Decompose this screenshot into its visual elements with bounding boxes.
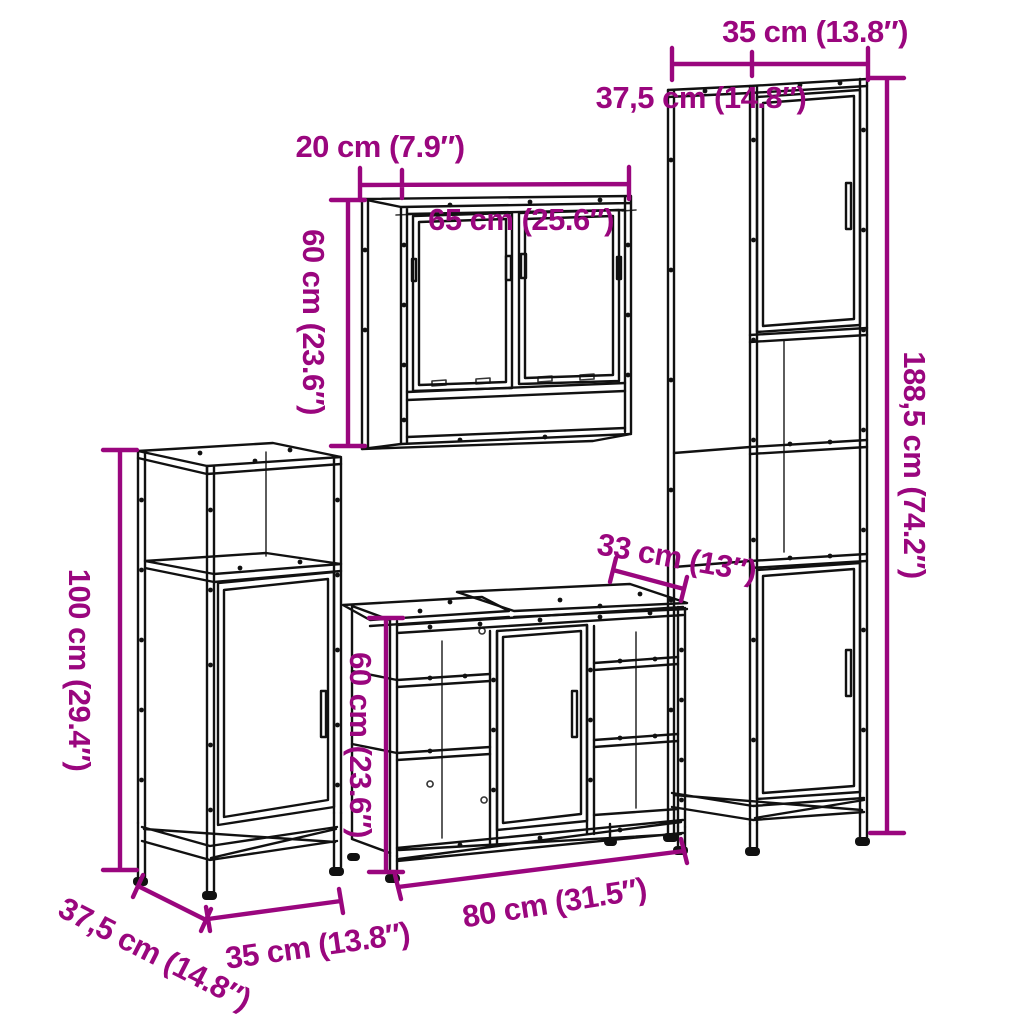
tall-cabinet-feet [663,833,870,856]
mirror-cabinet-height-dimension-line [331,200,365,446]
mirror-cabinet-height-label: 60 cm (23.6″) [296,229,331,415]
side-cabinet-door [218,572,334,825]
mirror-cabinet-bottom [362,428,631,449]
side-cabinet-drawing [133,443,344,900]
tall-cabinet-lower-door [757,563,860,799]
tall-cabinet-width-label: 35 cm (13.8″) [722,14,908,49]
sink-cabinet-depth-label: 33 cm (13″) [595,526,760,588]
side-cabinet-shelf [145,553,341,582]
screw-dots [139,448,340,813]
tall-cabinet-lower-door-handle [846,650,851,696]
tall-cabinet-drawing [663,79,870,856]
dimension-labels: 35 cm (13.8″) 37,5 cm (14.8″) 188,5 cm (… [53,14,932,1017]
mirror-cabinet-depth-label: 20 cm (7.9″) [295,129,464,164]
tall-cabinet-upper-door-handle [846,183,851,229]
mirror-door-left [413,213,512,391]
side-cabinet-width-label: 35 cm (13.8″) [223,915,412,976]
side-cabinet-frame [138,451,341,835]
tall-cabinet-shelf [674,440,867,454]
side-cabinet-feet [133,867,344,900]
side-cabinet-base-frame [142,827,337,860]
cam-holes [427,628,487,803]
tall-cabinet-depth-label: 37,5 cm (14.8″) [596,80,807,115]
mirror-cabinet-depth-dimension-line [360,167,629,200]
tall-cabinet-width-dimension-line [672,48,868,80]
sink-cabinet-drawing [343,584,688,883]
sink-cabinet-door [497,625,587,830]
side-cabinet-door-handle [321,691,326,737]
side-cabinet-height-dimension-line [103,450,137,870]
mirror-cabinet-width-label: 65 cm (25.6″) [428,202,614,237]
mirror-door-hinge [412,257,621,281]
tall-cabinet-upper-door [757,90,860,332]
sink-cabinet-width-label: 80 cm (31.5″) [460,871,649,935]
diagram-svg: 35 cm (13.8″) 37,5 cm (14.8″) 188,5 cm (… [0,0,1024,1024]
sink-cabinet-door-handle [572,691,577,737]
tall-cabinet-height-label: 188,5 cm (74.2″) [897,351,932,578]
screw-dots [669,81,866,743]
mirror-door-handle [506,254,526,280]
sink-cabinet-height-label: 60 cm (23.6″) [343,652,378,838]
furniture-dimension-diagram: 35 cm (13.8″) 37,5 cm (14.8″) 188,5 cm (… [0,0,1024,1024]
side-cabinet-width-dimension-line [206,889,343,931]
side-cabinet-top [138,443,341,474]
side-cabinet-height-label: 100 cm (29.4″) [62,569,97,772]
